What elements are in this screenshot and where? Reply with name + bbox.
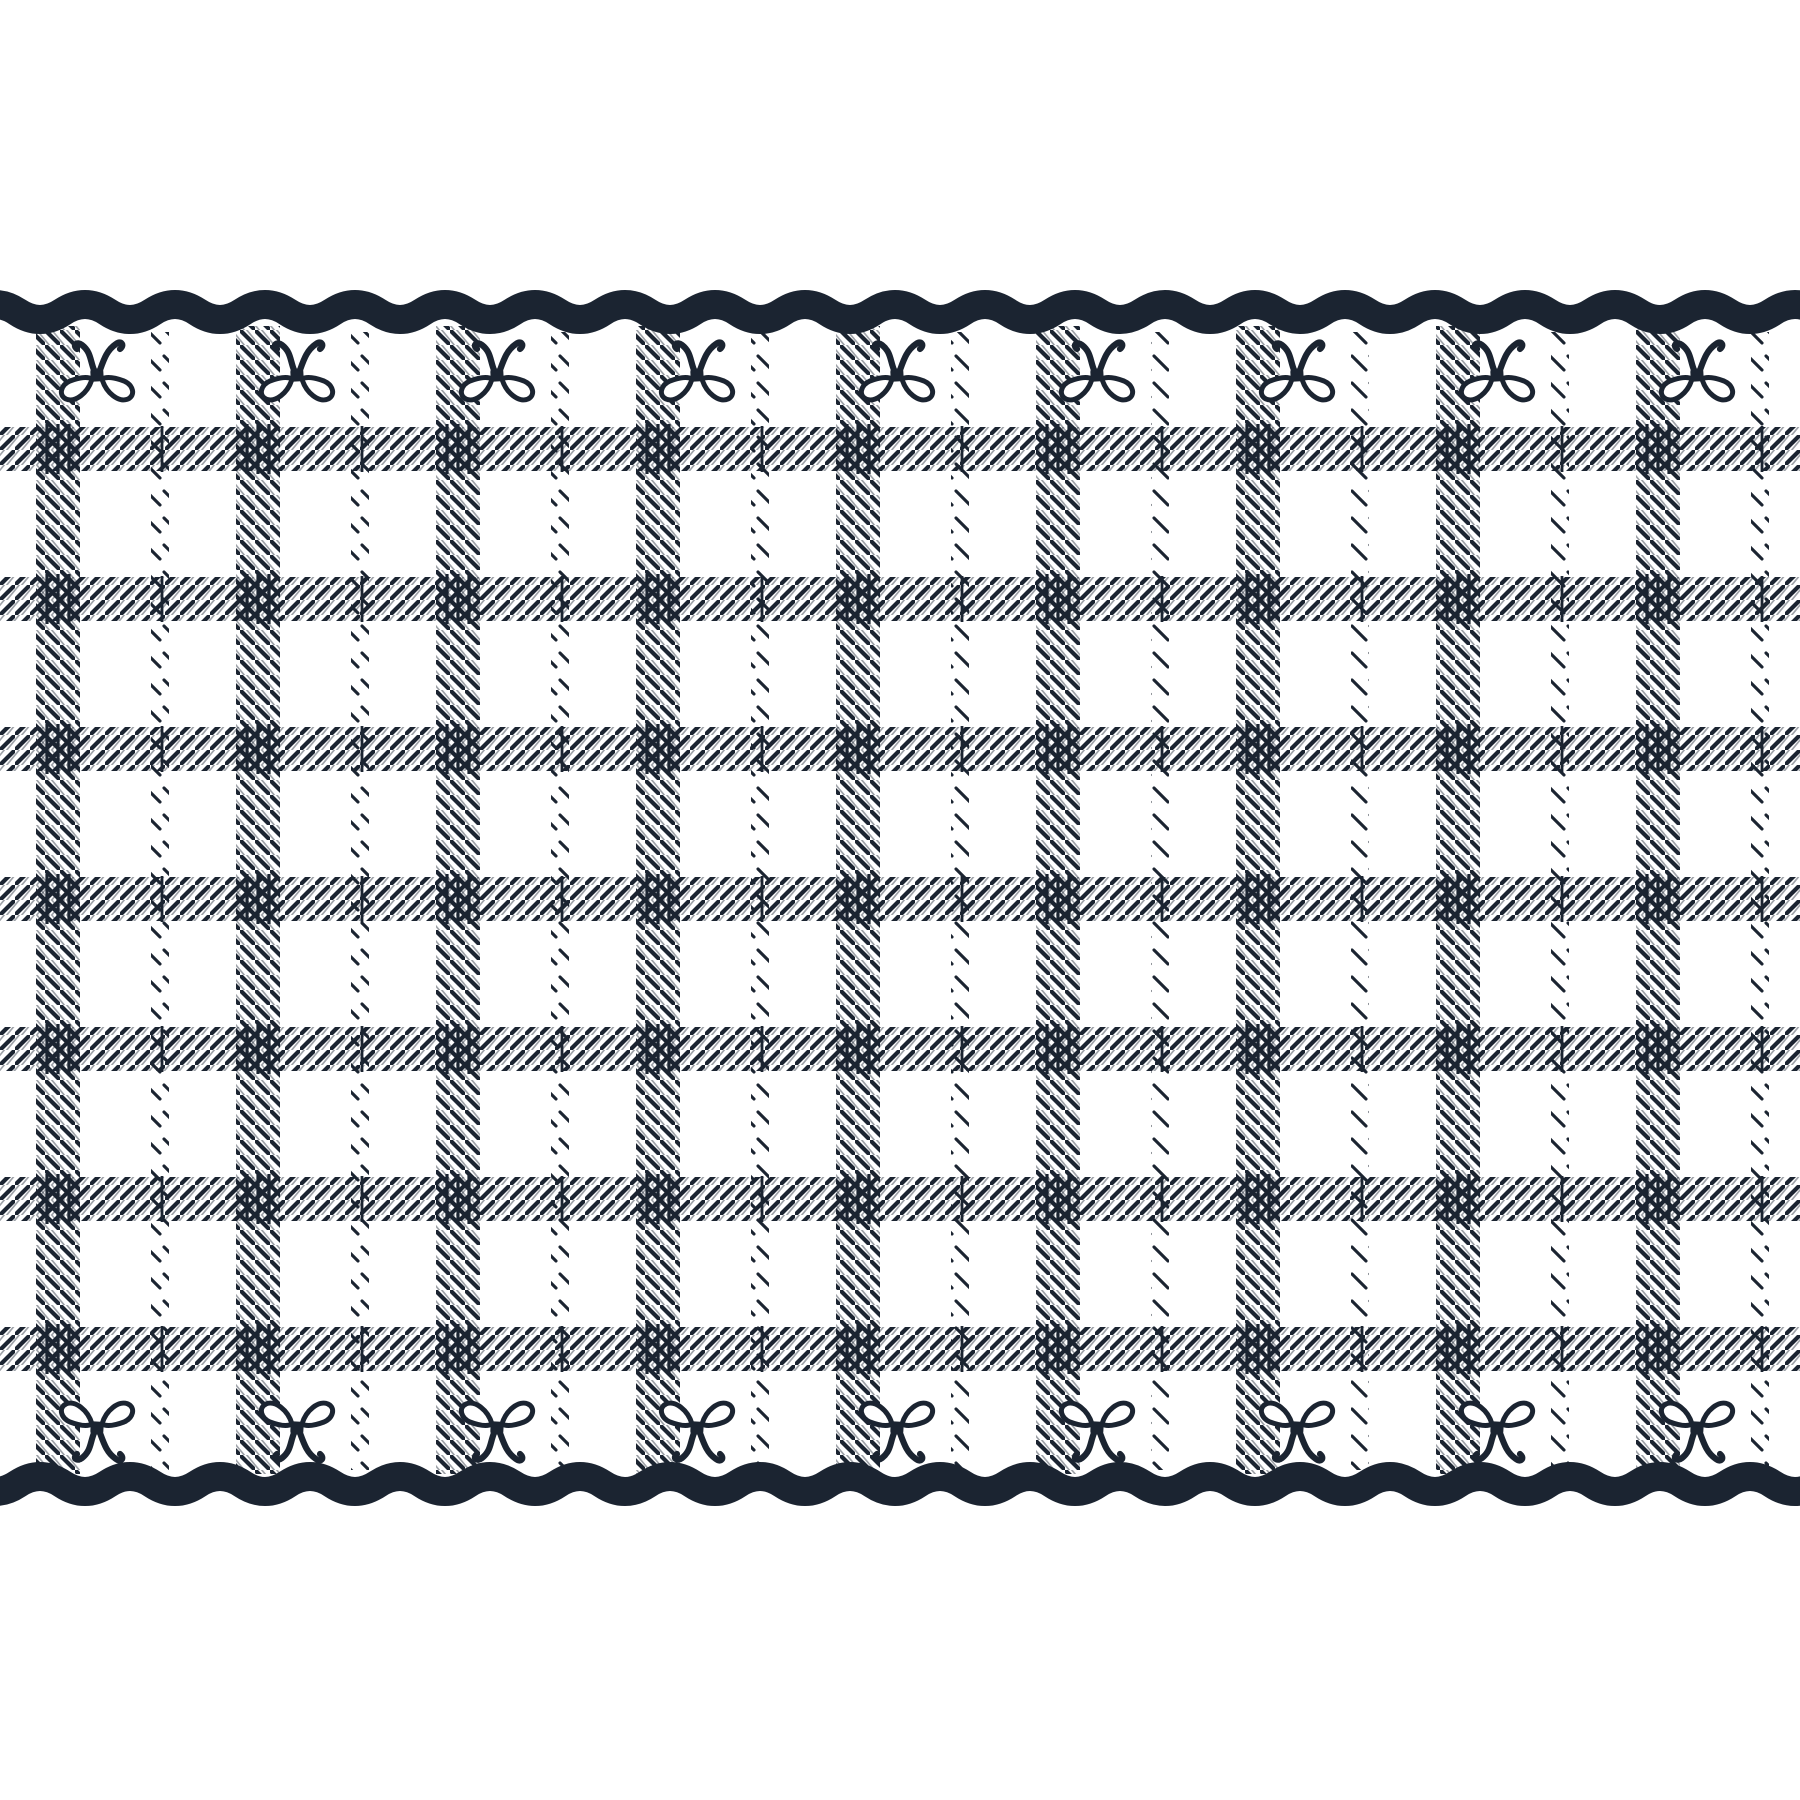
- plaid-bow-pattern-canvas: [0, 0, 1800, 1800]
- scallop-border-bottom: [0, 1477, 1800, 1492]
- scallop-border-top: [0, 305, 1800, 320]
- bow-row-bottom: [61, 1403, 1732, 1460]
- bow-row-top: [61, 343, 1732, 400]
- plaid-bow-wallpaper: [0, 0, 1800, 1800]
